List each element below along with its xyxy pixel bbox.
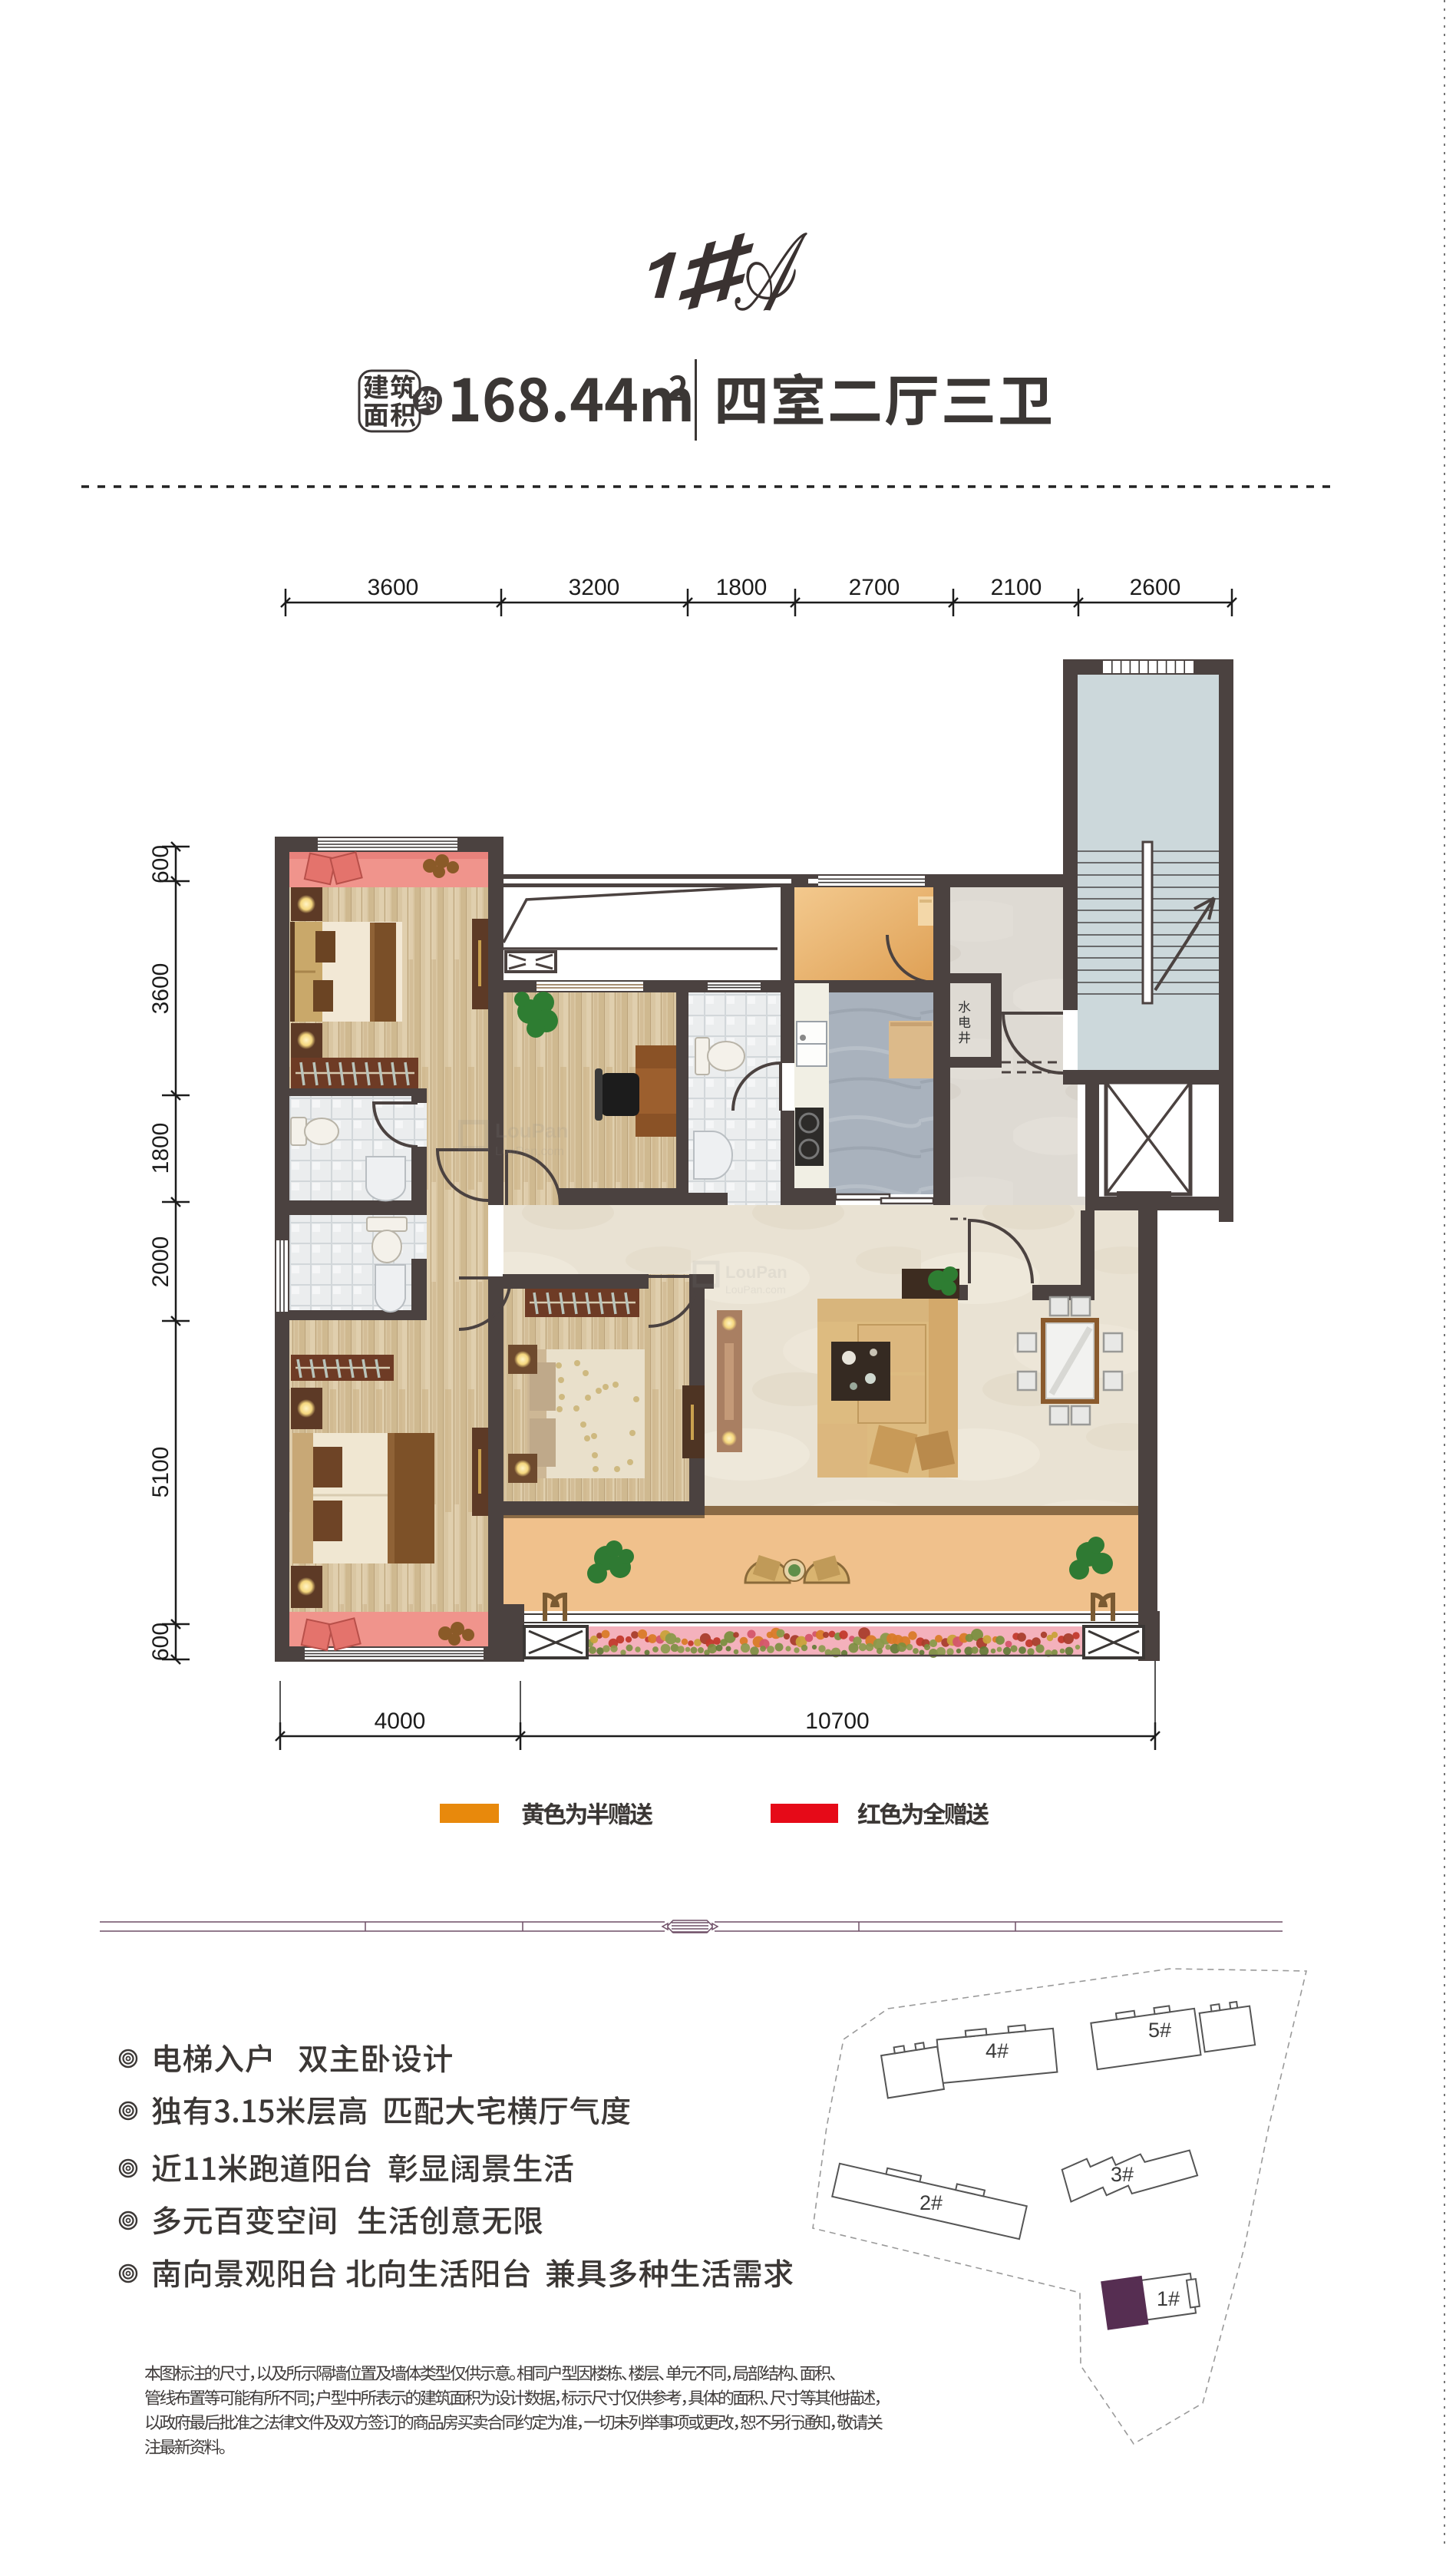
svg-text:3#: 3# — [1111, 2163, 1134, 2186]
svg-text:2700: 2700 — [849, 575, 900, 600]
svg-text:2100: 2100 — [991, 575, 1042, 600]
svg-text:2600: 2600 — [1130, 575, 1181, 600]
svg-text:10700: 10700 — [805, 1709, 869, 1734]
svg-text:600: 600 — [148, 845, 173, 883]
svg-text:1#: 1# — [1157, 2287, 1180, 2310]
svg-text:5100: 5100 — [148, 1447, 173, 1498]
svg-text:4000: 4000 — [375, 1709, 426, 1734]
svg-text:1800: 1800 — [148, 1123, 173, 1174]
svg-text:LouPan: LouPan — [495, 1119, 568, 1142]
svg-text:3200: 3200 — [569, 575, 620, 600]
svg-text:3600: 3600 — [368, 575, 419, 600]
svg-text:2#: 2# — [919, 2191, 943, 2214]
svg-text:600: 600 — [148, 1623, 173, 1661]
svg-text:LouPan.com: LouPan.com — [495, 1145, 564, 1158]
svg-text:2000: 2000 — [148, 1237, 173, 1288]
svg-text:5#: 5# — [1148, 2019, 1171, 2042]
svg-text:3600: 3600 — [148, 963, 173, 1015]
svg-text:4#: 4# — [986, 2039, 1009, 2062]
svg-text:LouPan: LouPan — [725, 1263, 787, 1282]
svg-text:1800: 1800 — [716, 575, 768, 600]
svg-text:LouPan.com: LouPan.com — [725, 1283, 786, 1296]
